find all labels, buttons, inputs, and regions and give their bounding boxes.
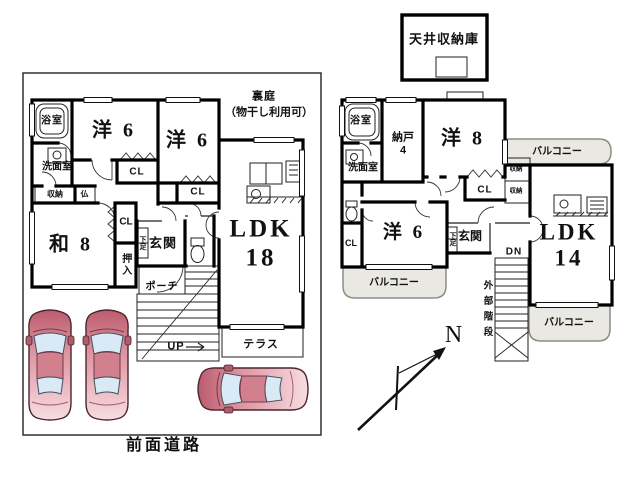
front-road-label: 前面道路 [126, 437, 202, 455]
compass-arrow-icon [358, 347, 446, 430]
backyard-label: 裏庭 [252, 91, 276, 104]
washroom-2f-label: 洗面室 [348, 162, 378, 174]
floorplan-page: 裏庭 （物干し利用可） 浴室 洗面室 収納 仏 洋 6 CL 洋 6 CL 和 … [0, 0, 642, 487]
closet2-2f-label: CL [345, 238, 357, 248]
car-icon [83, 310, 131, 420]
western-room2-1f-label: 洋 6 [166, 130, 210, 153]
ldk18-label: LDK 18 [229, 215, 292, 273]
external-stairs-label: 外部階段 [481, 280, 492, 342]
closet3-1f-label: CL [119, 216, 132, 228]
balcony-west-label: バルコニー [369, 277, 419, 289]
entrance-1f-label: 玄関 [149, 237, 177, 252]
closet1-2f-label: CL [477, 184, 492, 196]
storage-1f-label: 収納 [47, 189, 63, 198]
car-icon [26, 310, 74, 420]
entrance-2f-label: 玄関 [458, 230, 482, 244]
backyard-note-label: （物干し利用可） [225, 107, 313, 120]
shoe-cabinet-1f-label: 下足 [138, 236, 146, 250]
shoe-cabinet-2f-label: 下足 [448, 232, 456, 246]
balcony-south-label: バルコニー [544, 317, 594, 329]
car-icon [198, 365, 308, 413]
attic-storage-box [402, 15, 487, 80]
japanese-room-label: 和 8 [49, 234, 93, 257]
stairs-up-label: UP [167, 341, 184, 354]
compass-north-label: N [445, 322, 465, 350]
washroom-1f-label: 洗面室 [42, 161, 72, 173]
western-room1-1f-label: 洋 6 [92, 120, 136, 143]
storage-small1-label: 収納 [510, 165, 523, 172]
oshiire-label: 押入 [119, 253, 131, 277]
attic-label: 天井収納庫 [409, 33, 479, 48]
storage-small2-label: 収納 [510, 187, 523, 194]
storage-room-label: 納戸 4 [392, 131, 414, 156]
closet2-1f-label: CL [190, 186, 205, 198]
bath-2f-label: 浴室 [350, 115, 372, 127]
ldk14-label: LDK 14 [540, 220, 599, 273]
terrace-label: テラス [243, 339, 279, 352]
altar-label: 仏 [81, 189, 90, 198]
western-room6-2f-label: 洋 6 [383, 222, 425, 244]
closet1-1f-label: CL [129, 166, 144, 178]
porch-label: ポーチ [146, 281, 179, 293]
stairs-down-label: DN [506, 246, 522, 258]
balcony-east-label: バルコニー [532, 146, 582, 158]
western-room8-label: 洋 8 [441, 128, 485, 151]
bath-1f-label: 浴室 [41, 115, 63, 127]
